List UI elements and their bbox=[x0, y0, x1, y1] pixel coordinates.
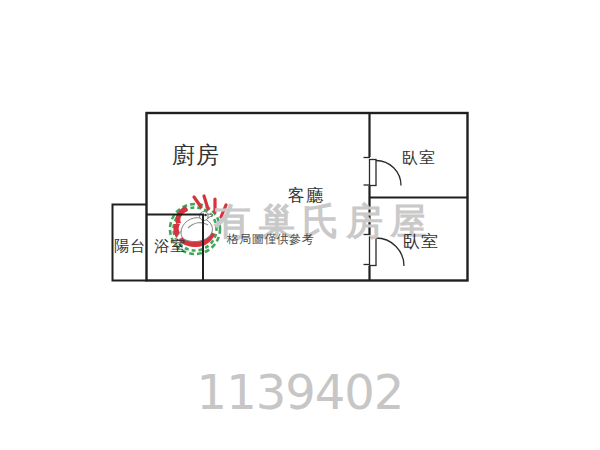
disclaimer-text: 格局圖僅供參考 bbox=[227, 233, 314, 245]
door-upper-bedroom bbox=[364, 158, 402, 186]
room-label-balcony: 陽台 bbox=[114, 239, 146, 254]
floorplan-image: 有巢氏房屋 廚房 客廳 臥室 臥室 陽台 浴室 格局圖僅供參考 1139402 bbox=[0, 0, 600, 450]
listing-id: 1139402 bbox=[0, 368, 600, 416]
room-label-bathroom: 浴室 bbox=[154, 239, 186, 254]
room-label-bedroom-upper: 臥室 bbox=[402, 150, 436, 166]
room-label-kitchen: 廚房 bbox=[172, 144, 220, 167]
room-label-bedroom-lower: 臥室 bbox=[403, 233, 439, 250]
room-label-living-room: 客廳 bbox=[288, 187, 324, 204]
